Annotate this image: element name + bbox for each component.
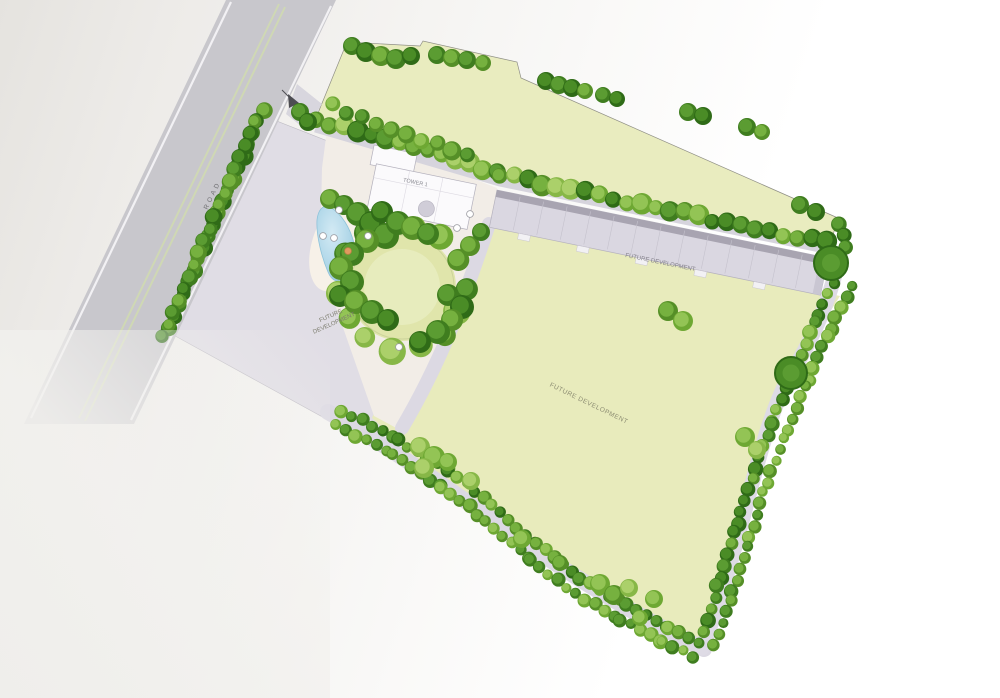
tree-crown [733,576,742,585]
tree-crown [772,456,779,463]
tree-crown [356,110,367,121]
tree-crown [578,84,590,96]
tree-crown [661,202,676,217]
tree-crown [402,443,409,450]
tree-crown [367,422,376,431]
tree-crown [718,560,729,571]
tree-crown [762,223,774,235]
tree-crown [340,425,349,434]
tree-crown [776,445,784,453]
tree-crown [794,391,804,401]
tree-crown [543,570,551,578]
tree-crown [749,462,760,473]
tree-crown [189,260,198,269]
tree-crown [335,406,345,416]
tree-crown [227,162,239,174]
tree-crown [571,588,579,596]
tree-crown [739,119,752,132]
tree-crown [459,52,472,65]
tree-crown [818,232,833,247]
tree-crown [486,499,495,508]
roundabout-tree-crown [822,254,840,272]
tree-crown [680,104,693,117]
tree-crown [645,628,656,639]
tree-crown [356,328,371,343]
tree-crown [810,316,819,325]
tree-crown [410,332,426,348]
tree-crown [503,515,512,524]
amenity-marker [396,344,403,351]
tree-crown [541,544,550,553]
tree-crown [454,496,463,505]
tree-crown [493,169,504,180]
tree-crown [679,646,686,653]
tree-crown [552,573,562,583]
tree-crown [714,629,722,637]
tree-crown [763,430,772,439]
tree-crown [495,507,503,515]
tree-crown [832,218,843,229]
tree-crown [346,292,363,309]
tree-crown [614,615,624,625]
tree-crown [777,394,787,404]
tree-crown [662,622,672,632]
tree-crown [232,150,244,162]
tree-crown [734,217,747,230]
amenity-marker [336,207,343,214]
tree-crown [749,473,758,482]
tree-crown [331,420,339,428]
tree-crown [779,433,787,441]
tree-crown [488,523,497,532]
tree-crown [553,556,565,568]
tree-crown [196,234,207,245]
tree-crown [764,465,774,475]
tree-crown [721,548,732,559]
tree-crown [711,593,720,602]
tree-crown [473,224,486,237]
corner-tree-crown [783,365,800,382]
tree-crown [183,270,195,282]
tree-crown [372,202,388,218]
tree-crown [431,136,442,147]
tree-crown [683,632,692,641]
tree-crown [728,526,738,536]
tree-crown [808,204,821,217]
tree-crown [666,641,676,651]
tree-crown [817,299,825,307]
amenity-marker [365,233,372,240]
master-plan-drawing: ROAD FUTURE DEVELOPMENT [0,0,1000,698]
paper-fade-overlay [0,330,330,698]
tree-crown [411,438,425,452]
tree-crown [480,516,488,524]
tree-crown [740,553,749,562]
tree-crown [403,48,416,61]
tree-crown [378,310,394,326]
tree-crown [783,425,792,434]
tree-crown [564,80,577,93]
tree-crown [438,285,454,301]
tree-crown [534,562,543,571]
tree-crown [166,306,177,317]
tree-crown [173,295,184,306]
tree-crown [705,215,716,226]
tree-crown [451,472,460,481]
tree-crown [747,222,760,235]
tree-crown [701,614,712,625]
tree-crown [551,77,564,90]
tree-crown [735,507,744,516]
tree-crown [690,206,705,221]
tree-crown [405,462,415,472]
tree-crown [792,197,805,210]
tree-crown [823,289,831,297]
tree-crown [497,531,505,539]
tree-crown [776,229,788,241]
tree-crown [822,330,832,340]
tree-crown [790,231,802,243]
tree-crown [461,148,472,159]
site-plan-canvas: ROAD FUTURE DEVELOPMENT [0,0,1000,698]
tree-crown [533,176,549,192]
tree-crown [753,510,761,518]
tree-crown [474,161,488,175]
tree-crown [213,200,222,209]
amenity-marker-accent [345,248,352,255]
tree-crown [178,283,188,293]
tree-crown [444,50,457,63]
tree-crown [444,143,458,157]
tree-crown [464,499,475,510]
tree-crown [370,118,381,129]
tree-crown [330,286,346,302]
tree-crown [562,584,569,591]
tree-crown [725,585,735,595]
tree-crown [348,122,364,138]
tree-crown [428,322,445,339]
tree-crown [673,626,683,636]
tree-crown [765,417,776,428]
tree-crown [599,606,608,615]
tree-crown [300,114,313,127]
tree-crown [239,139,251,151]
tree-crown [596,88,608,100]
tree-crown [461,237,475,251]
tree-crown [415,459,429,473]
tree-crown [592,187,605,200]
tree-crown [726,538,735,547]
tree-crown [848,282,855,289]
tree-crown [842,291,852,301]
tree-crown [531,538,540,547]
tree-crown [429,47,442,60]
tree-crown [677,203,690,216]
tree-crown [754,497,764,507]
tree-crown [357,414,366,423]
tree-crown [646,591,659,604]
tree-crown [801,339,811,349]
tree-crown [633,194,648,209]
tree-crown [257,103,269,115]
tree-crown [514,531,527,544]
tree-crown [378,426,386,434]
tree-crown [372,440,381,449]
tree-crown [719,214,732,227]
tree-crown [244,127,256,139]
tree-crown [362,435,370,443]
tree-crown [657,637,665,645]
tree-crown [573,573,583,583]
amenity-marker [467,211,474,218]
tree-crown [621,580,634,593]
tree-crown [524,554,534,564]
tree-crown [444,488,454,498]
tree-crown [191,245,203,257]
tree-crown [449,250,465,266]
tree-crown [659,302,673,316]
tree-crown [749,521,759,531]
tree-crown [457,280,473,296]
tree-crown [399,127,412,140]
tree-crown [206,209,219,222]
tree-crown [605,586,619,600]
tree-crown [577,182,591,196]
tree-crown [694,638,702,646]
tree-crown [435,482,445,492]
tree-crown [838,229,849,240]
tree-crown [392,433,402,443]
tree-crown [788,414,796,422]
tree-crown [674,312,688,326]
tree-crown [734,563,743,572]
tree-crown [479,492,489,502]
amenity-marker [331,235,338,242]
tree-crown [736,428,750,442]
tree-crown [321,190,335,204]
tree-crown [743,541,751,549]
tree-crown [340,107,351,118]
tree-crown [651,616,660,625]
tree-crown [695,108,708,121]
tree-crown [357,43,371,57]
tree-crown [349,430,360,441]
tree-crown [771,405,779,413]
tree-crown [763,478,772,487]
amenity-marker [454,225,461,232]
tree-crown [835,301,845,311]
tree-crown [606,193,618,205]
tree-crown [742,483,753,494]
tree-crown [792,403,802,413]
tree-crown [649,201,660,212]
tree-crown [362,302,379,319]
tree-crown [707,604,715,612]
tree-crown [698,626,707,635]
tree-crown [590,598,600,608]
tree-crown [418,224,434,240]
tree-crown [322,118,334,130]
tree-crown [384,123,396,135]
tree-crown [562,180,577,195]
tree-crown [708,640,717,649]
tree-crown [372,47,386,61]
tree-crown [758,487,766,495]
tree-crown [463,473,476,486]
tree-crown [223,174,236,187]
tree-crown [710,579,721,590]
amenity-marker [320,233,327,240]
tree-crown [507,168,519,180]
tree-crown [326,97,337,108]
tree-crown [414,134,426,146]
tree-crown [805,230,818,243]
tree-crown [538,73,551,86]
tree-crown [687,652,696,661]
tree-crown [397,455,406,464]
tree-crown [164,320,173,329]
tree-crown [344,38,357,51]
tree-crown [249,116,259,126]
tree-crown [548,178,562,192]
tree-crown [739,495,748,504]
tree-crown [476,56,488,68]
tree-crown [205,224,215,234]
tree-crown [620,196,632,208]
tree-crown [387,50,401,64]
tree-crown [578,595,588,605]
tree-crown [749,442,762,455]
tree-crown [633,611,645,623]
tree-crown [743,532,753,542]
tree-crown [719,619,726,626]
tree-crown [755,125,767,137]
tree-crown [220,188,230,198]
tree-crown [816,341,825,350]
tree-crown [828,311,839,322]
tree-crown [347,412,355,420]
tree-crown [726,595,735,604]
tree-crown [440,454,453,467]
tree-crown [591,575,605,589]
tree-crown [471,510,480,519]
tree-crown [720,606,729,615]
tree-crown [811,351,821,361]
tree-crown [610,92,622,104]
tree-crown [387,449,395,457]
tree-crown [803,326,814,337]
